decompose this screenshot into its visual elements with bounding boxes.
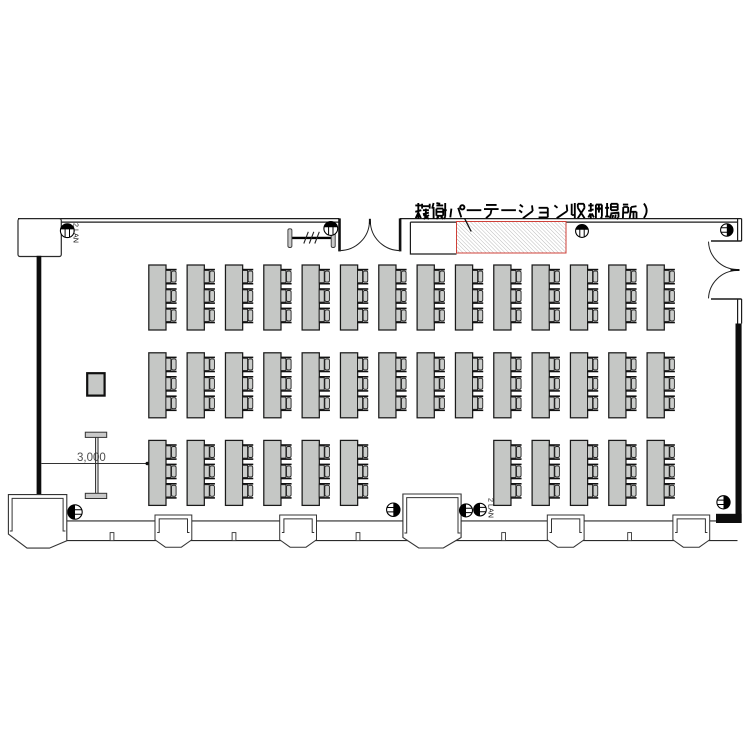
svg-text:2 LAN: 2 LAN (72, 223, 81, 243)
svg-text:3,000: 3,000 (77, 452, 106, 464)
